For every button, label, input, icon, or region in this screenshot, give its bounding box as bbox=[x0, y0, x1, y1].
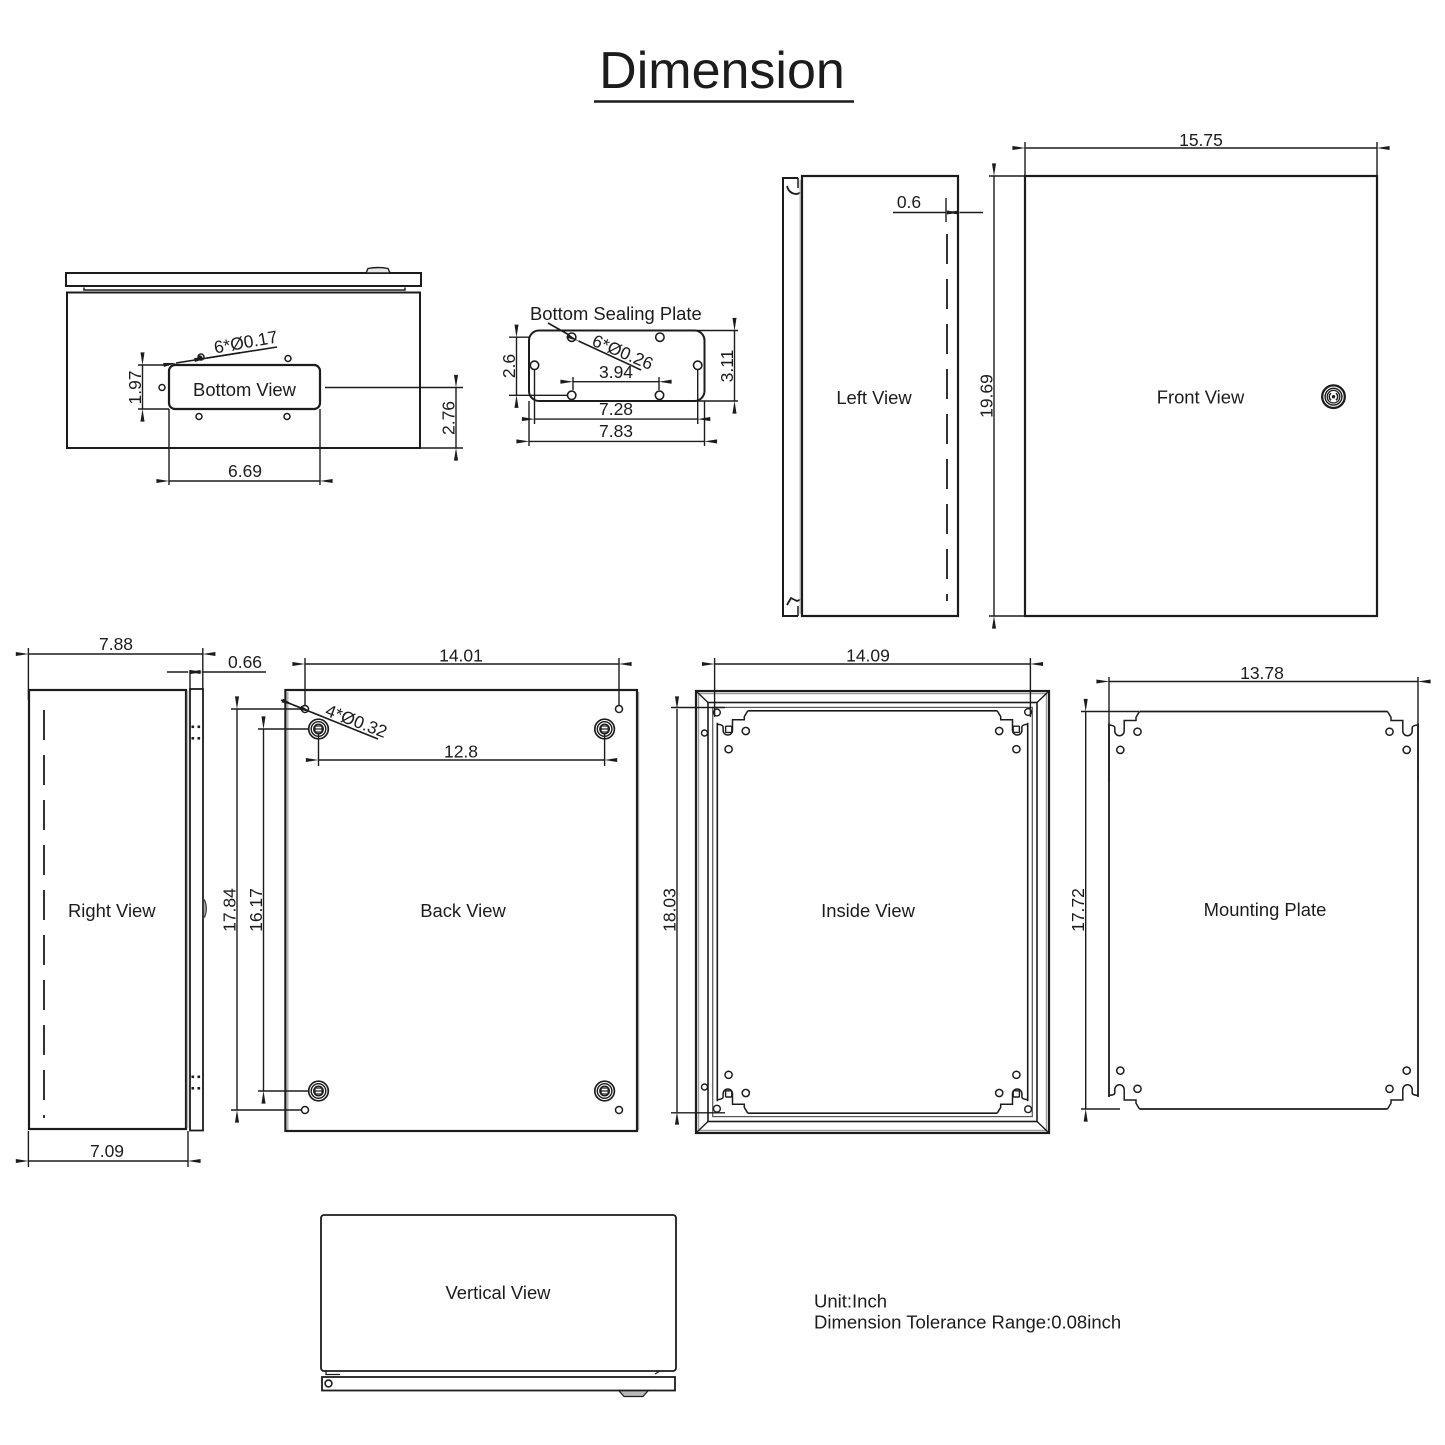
svg-text:Dimension: Dimension bbox=[599, 42, 845, 100]
svg-text:17.72: 17.72 bbox=[1068, 888, 1088, 932]
svg-text:7.83: 7.83 bbox=[599, 421, 633, 441]
svg-text:0.66: 0.66 bbox=[228, 652, 262, 672]
svg-text:7.28: 7.28 bbox=[599, 399, 633, 419]
svg-text:Mounting Plate: Mounting Plate bbox=[1204, 899, 1327, 920]
svg-text:14.09: 14.09 bbox=[846, 646, 890, 666]
svg-text:18.03: 18.03 bbox=[660, 888, 680, 932]
svg-text:13.78: 13.78 bbox=[1240, 663, 1284, 683]
svg-text:3.11: 3.11 bbox=[717, 350, 737, 383]
svg-text:14.01: 14.01 bbox=[439, 646, 483, 666]
svg-text:Back View: Back View bbox=[420, 900, 506, 921]
svg-text:6.69: 6.69 bbox=[228, 461, 262, 481]
svg-text:Inside View: Inside View bbox=[821, 900, 915, 921]
svg-text:0.6: 0.6 bbox=[897, 192, 921, 212]
svg-text:15.75: 15.75 bbox=[1179, 130, 1223, 150]
svg-text:Bottom Sealing Plate: Bottom Sealing Plate bbox=[530, 303, 702, 324]
svg-text:Front View: Front View bbox=[1157, 387, 1245, 408]
svg-text:17.84: 17.84 bbox=[220, 888, 240, 932]
svg-text:Dimension Tolerance Range:0.08: Dimension Tolerance Range:0.08inch bbox=[814, 1312, 1121, 1333]
svg-text:Unit:Inch: Unit:Inch bbox=[814, 1291, 887, 1312]
svg-text:2.6: 2.6 bbox=[499, 354, 519, 378]
svg-text:3.94: 3.94 bbox=[599, 362, 633, 382]
svg-text:12.8: 12.8 bbox=[444, 742, 478, 762]
svg-text:1.97: 1.97 bbox=[125, 370, 145, 404]
svg-text:Bottom View: Bottom View bbox=[193, 379, 297, 400]
svg-text:16.17: 16.17 bbox=[246, 888, 266, 932]
svg-text:7.88: 7.88 bbox=[99, 634, 133, 654]
svg-text:Right View: Right View bbox=[68, 900, 156, 921]
svg-text:19.69: 19.69 bbox=[977, 374, 997, 418]
svg-text:7.09: 7.09 bbox=[90, 1141, 124, 1161]
svg-text:2.76: 2.76 bbox=[439, 401, 459, 435]
svg-text:Left View: Left View bbox=[836, 387, 912, 408]
svg-text:Vertical View: Vertical View bbox=[446, 1282, 552, 1303]
